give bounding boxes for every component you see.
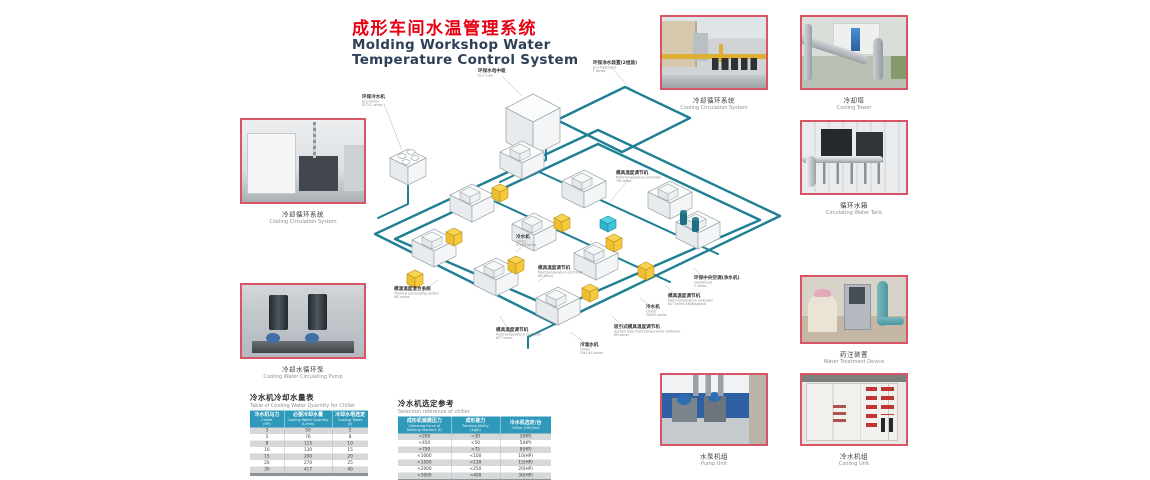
photo-shape <box>247 133 296 194</box>
table-title-chinese: 冷水机冷却水量表 <box>250 392 368 403</box>
cell: 417 <box>284 467 332 475</box>
photo-shape <box>806 156 815 187</box>
brochure-page: 成形车间水温管理系统 Molding Workshop Water Temper… <box>0 0 1150 480</box>
header-en: Chiller (HP)/Unit <box>501 426 551 430</box>
header-unit: (kg/h) <box>452 428 500 432</box>
photo-caption: 冷却塔 Cooling Tower <box>780 95 928 111</box>
photo-shape <box>266 333 279 343</box>
photo-shape <box>891 56 906 79</box>
cell: <3000 <box>398 473 451 480</box>
column-header: 冷水机马力 Chiller (HP) <box>250 411 284 428</box>
cell: <400 <box>451 473 500 480</box>
header-unit: (t) <box>333 422 368 426</box>
photo-pump-unit <box>660 373 768 446</box>
photo-shape <box>269 295 289 330</box>
cell: 40 <box>332 467 368 475</box>
table-row: <3000<40030(HP) <box>398 473 551 480</box>
table-title-english: Table of Cooling Water Quantity for Chil… <box>250 403 368 409</box>
page-title-chinese: 成形车间水温管理系统 <box>352 14 537 39</box>
photo-shape <box>877 317 904 325</box>
photo-caption: 药注装置 Water Treatment Device <box>780 349 928 365</box>
column-header: 成形机锁模压力 Clamping Force of Molding Machin… <box>398 417 451 434</box>
caption-chinese: 冷却塔 <box>780 95 928 105</box>
header-unit: (L/min) <box>285 422 332 426</box>
caption-english: Cooling Unit <box>780 461 928 467</box>
caption-chinese: 水泵机组 <box>640 451 788 461</box>
photo-shape <box>693 375 724 396</box>
diagram-label: 模具温度调节机 Mold temperature controller KCT … <box>668 282 718 306</box>
photo-caption: 冷水机组 Cooling Unit <box>780 451 928 467</box>
header-unit: Molding Machine (t) <box>399 428 451 432</box>
chiller-selection-table: 冷水机选定参考 Selection reference of chiller 成… <box>398 398 551 480</box>
photo-cooling-unit <box>800 373 908 446</box>
cell: 30 <box>250 467 284 475</box>
page-title-english-line1: Molding Workshop Water <box>352 38 578 53</box>
photo-cooling-tower <box>800 15 908 90</box>
photo-shape <box>881 387 893 415</box>
photo-shape <box>299 156 338 190</box>
photo-shape <box>851 28 860 51</box>
photo-water-treatment-device <box>800 275 908 344</box>
photo-shape <box>873 38 883 81</box>
photo-cooling-water-circulating-pump <box>240 283 366 359</box>
caption-chinese: 药注装置 <box>780 349 928 359</box>
photo-shape <box>313 122 317 158</box>
cooling-water-table: 冷水机冷却水量表 Table of Cooling Water Quantity… <box>250 392 368 476</box>
column-header: 成形能力 Forming Ability (kg/h) <box>451 417 500 434</box>
photo-shape <box>866 387 876 431</box>
column-header: 冷却水塔选定 Cooling Tower (t) <box>332 411 368 428</box>
table-title-chinese: 冷水机选定参考 <box>398 398 551 409</box>
photo-shape <box>849 287 866 304</box>
photo-shape <box>804 24 812 81</box>
photo-shape <box>305 333 318 343</box>
table-title-english: Selection reference of chiller <box>398 409 551 415</box>
piping-system-diagram: 环保净水装置(2组装) Eco-treatment F series 环保水电中… <box>350 52 794 378</box>
photo-shape <box>881 418 896 432</box>
eco-chiller <box>390 149 426 185</box>
diagram-label: 冷温水机 Chiller CW-I-KS series <box>580 331 603 355</box>
column-header: 冷水机选定/台 Chiller (HP)/Unit <box>500 417 551 434</box>
caption-english: Cooling Tower <box>780 105 928 111</box>
photo-shape <box>308 294 328 330</box>
caption-english: Water Treatment Device <box>780 359 928 365</box>
caption-english: Circulating Water Tank <box>780 210 928 216</box>
photo-shape <box>814 289 831 297</box>
table: 成形机锁模压力 Clamping Force of Molding Machin… <box>398 417 551 480</box>
photo-shape <box>808 294 837 332</box>
diagram-label: 环保冷水机 Eco-Chiller ECO-C series <box>362 83 390 107</box>
header-unit: (HP) <box>251 422 284 426</box>
photo-shape <box>833 405 845 422</box>
diagram-label: 环保中央空调(净水机) Condensed C series <box>694 264 745 288</box>
table: 冷水机马力 Chiller (HP) 必要冷却水量 Cooling Water … <box>250 411 368 477</box>
caption-chinese: 冷水机组 <box>780 451 928 461</box>
photo-shape <box>252 341 354 353</box>
column-header: 必要冷却水量 Cooling Water Quantity (L/min) <box>284 411 332 428</box>
photo-caption: 水泵机组 Pump Unit <box>640 451 788 467</box>
caption-english: Pump Unit <box>640 461 788 467</box>
photo-cooling-circulation-system-left <box>240 118 366 204</box>
photo-caption: 循环水箱 Circulating Water Tank <box>780 200 928 216</box>
cyan-unit <box>600 216 616 232</box>
photo-shape <box>749 375 766 444</box>
caption-chinese: 循环水箱 <box>780 200 928 210</box>
photo-shape <box>823 163 885 184</box>
diagram-label: 环保净水装置(2组装) Eco-treatment F series <box>593 52 642 73</box>
table-row: 3041740 <box>250 467 368 475</box>
diagram-label: 模具温度调节机 Mold temperature controller KCT … <box>496 316 546 340</box>
cell: 30(HP) <box>500 473 551 480</box>
diagram-label: 环保水电中枢 Eco Cube <box>478 57 511 77</box>
photo-circulating-water-tank <box>800 120 908 195</box>
